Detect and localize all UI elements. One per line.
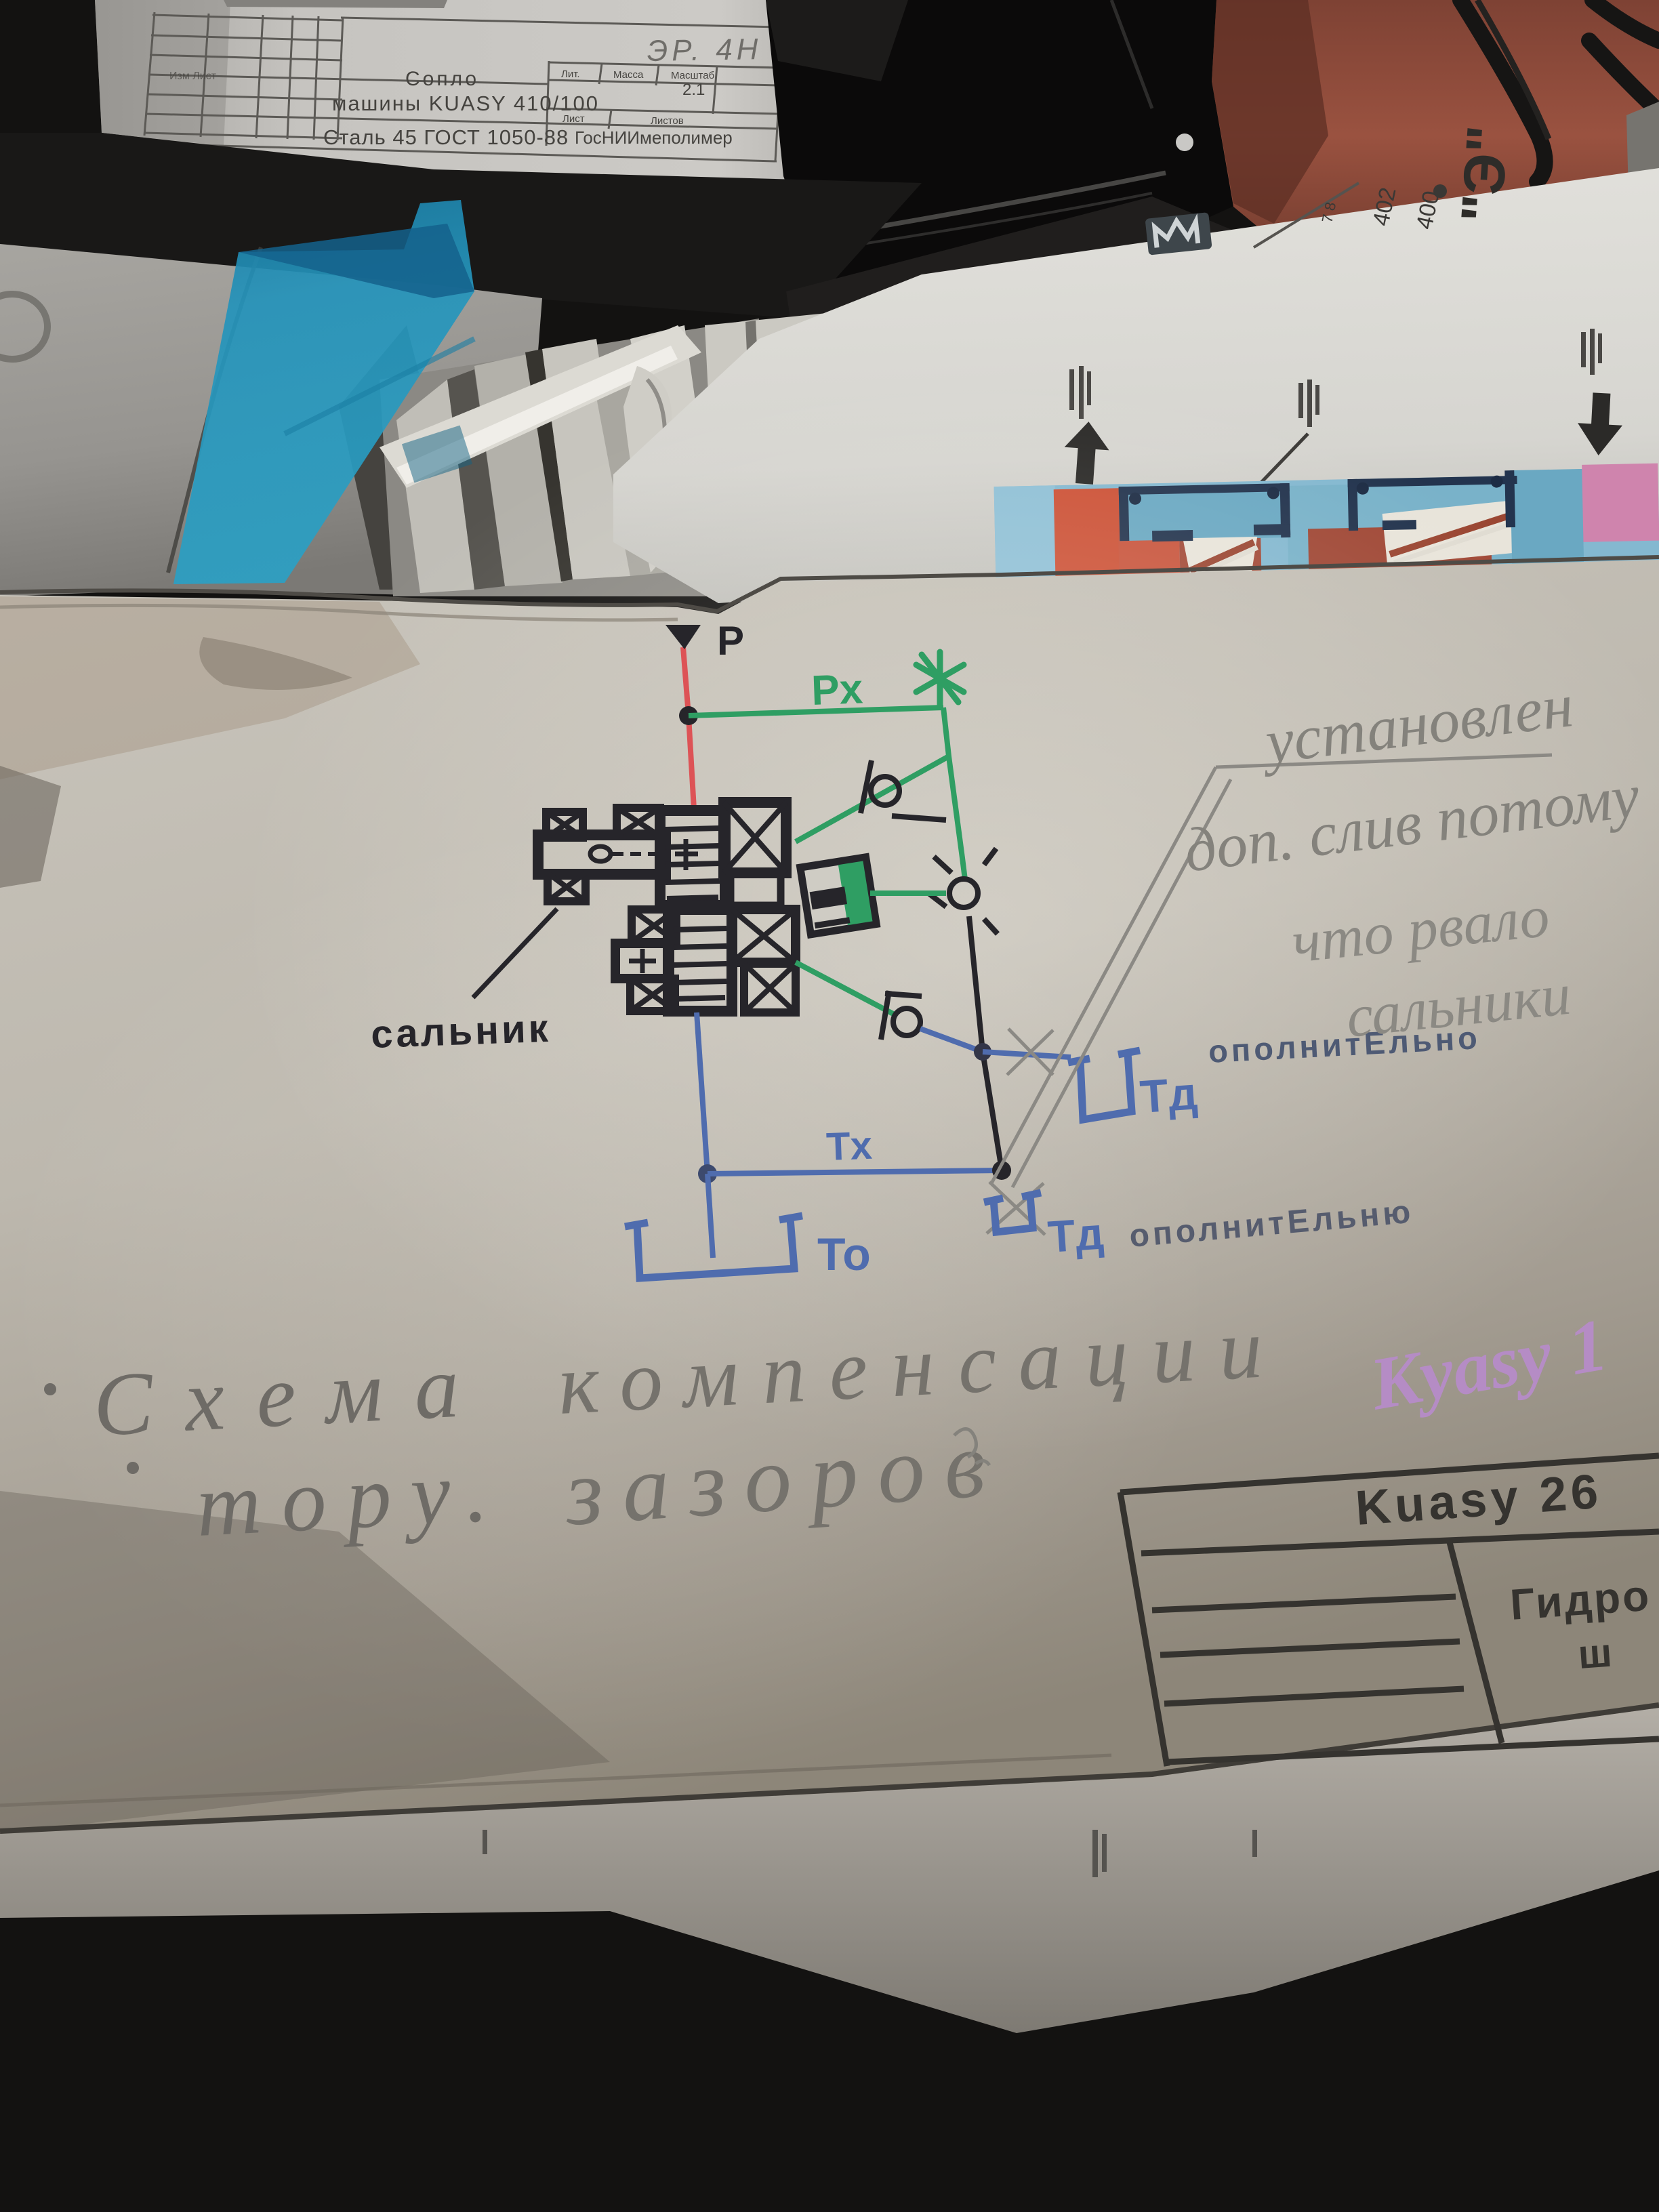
svg-text:То: То: [817, 1229, 871, 1280]
svg-text:Tx: Tx: [825, 1124, 873, 1169]
svg-text:Px: Px: [811, 665, 864, 714]
svg-text:Лит.: Лит.: [561, 68, 580, 80]
svg-text:Масштаб: Масштаб: [671, 70, 714, 81]
svg-text:Тд: Тд: [1046, 1208, 1105, 1262]
svg-text:P: P: [717, 618, 744, 663]
svg-text:сальник: сальник: [370, 1006, 552, 1057]
svg-text:Тд: Тд: [1139, 1067, 1200, 1123]
svg-text:Сопло: Сопло: [405, 68, 479, 90]
svg-text:Масса: Масса: [613, 69, 644, 81]
svg-text:2.1: 2.1: [682, 81, 705, 99]
svg-text:Листов: Листов: [651, 115, 684, 127]
svg-text:Гидро: Гидро: [1509, 1571, 1652, 1629]
svg-text:машины KUASY 410/100: машины KUASY 410/100: [332, 91, 599, 115]
svg-text:ш: ш: [1576, 1630, 1614, 1677]
svg-text:"Э": "Э": [1449, 123, 1521, 224]
svg-text:Лист: Лист: [562, 113, 585, 125]
svg-text:ГосНИИмеполимер: ГосНИИмеполимер: [575, 127, 733, 148]
svg-text:Сталь 45 ГОСТ 1050-88: Сталь 45 ГОСТ 1050-88: [323, 125, 569, 149]
svg-text:Изм Лист: Изм Лист: [169, 70, 217, 82]
